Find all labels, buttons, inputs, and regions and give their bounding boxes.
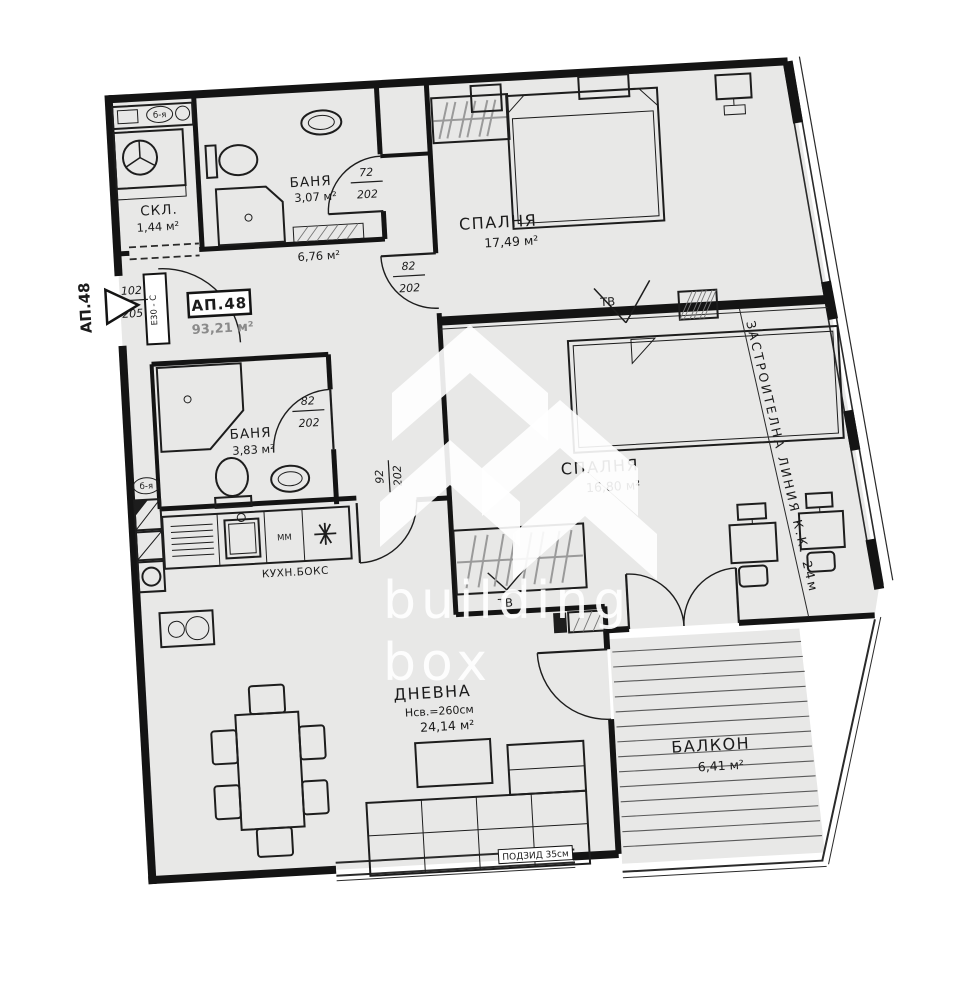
- bath2-area: 3,83 м²: [232, 442, 275, 458]
- shaft-label: б-я: [139, 481, 153, 492]
- watermark-word-1: building: [383, 571, 631, 631]
- dishwasher-label: ММ: [277, 533, 292, 544]
- floorplan-page: Е30 - С 102 205 72 202 82 202 82 202: [0, 0, 953, 1000]
- watermark-word-2: box: [383, 633, 492, 693]
- apartment-label: АП.48 93,21 м²: [188, 290, 254, 339]
- bedroom1-door-height: 202: [399, 281, 421, 295]
- bedroom1-area: 17,49 м²: [484, 233, 539, 251]
- hall-door-width: 92: [373, 469, 387, 484]
- balcony-area: 6,41 м²: [697, 757, 744, 775]
- bath1-door-height: 202: [357, 187, 379, 201]
- bath1-door-width: 72: [359, 166, 374, 180]
- entrance-door-width: 102: [121, 284, 143, 298]
- bath2-name: БАНЯ: [229, 425, 272, 443]
- storage-name: СКЛ.: [140, 202, 178, 220]
- apartment-id: АП.48: [191, 294, 248, 315]
- bath2-door-height: 202: [298, 416, 320, 430]
- bath2-door-width: 82: [301, 394, 316, 408]
- storage-shaft-label: б-я: [153, 110, 167, 121]
- entry-marker-label: АП.48: [75, 282, 96, 334]
- living-area: 24,14 м²: [420, 717, 475, 735]
- bath1-area: 3,07 м²: [294, 189, 337, 205]
- floorplan-drawing: Е30 - С 102 205 72 202 82 202 82 202: [0, 0, 953, 1000]
- bedroom1-door-width: 82: [401, 259, 416, 273]
- tv-label-bedroom1: ТВ: [599, 294, 616, 309]
- entrance-door-rating: Е30 - С: [149, 294, 161, 325]
- corridor-area: 6,76 м²: [297, 248, 340, 264]
- storage-area: 1,44 м²: [136, 219, 179, 235]
